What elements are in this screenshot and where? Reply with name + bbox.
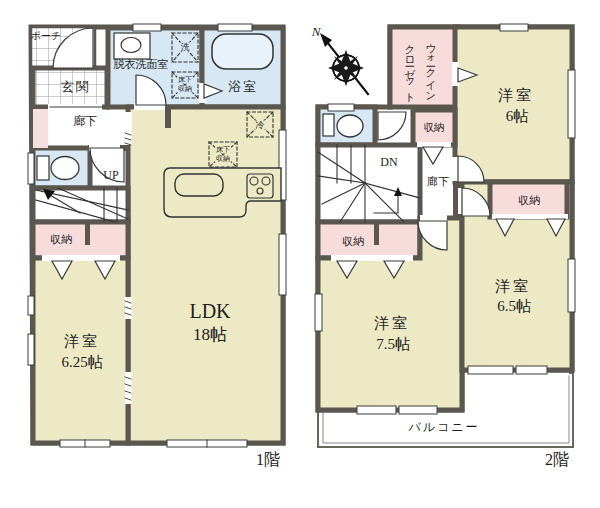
- label-washer: 洗: [180, 43, 191, 52]
- label-fridge: 冷: [255, 121, 266, 130]
- label-underfloor1-line2: 収納: [177, 86, 193, 93]
- sink-icon: [114, 33, 150, 59]
- label-floor2: 2階: [545, 452, 569, 468]
- label-storage-bedroom65: 収納: [518, 195, 540, 206]
- label-underfloor1-line1: 床下: [177, 77, 193, 84]
- label-ldk-name: LDK: [189, 301, 230, 321]
- floorplan-drawing: [0, 0, 600, 508]
- label-wic-line2: クローゼット: [404, 37, 415, 97]
- label-underfloor2-line2: 収納: [215, 156, 231, 163]
- label-bedroom-1f-name: 洋室: [64, 334, 100, 349]
- label-bedroom75-size: 7.5帖: [376, 337, 410, 352]
- room-ldk: [128, 107, 283, 443]
- label-bedroom-1f-size: 6.25帖: [61, 355, 102, 370]
- label-porch: ポーチ: [31, 31, 61, 41]
- entrance-side-strip: [33, 109, 48, 148]
- closet-track: [492, 214, 568, 219]
- label-ldk-size: 18帖: [193, 326, 227, 343]
- label-bathroom: 浴室: [228, 80, 258, 93]
- wall-stub: [374, 222, 379, 245]
- toilet-icon-2f: [323, 114, 363, 137]
- room-storage-under-stairs: [318, 222, 420, 258]
- label-storage-hall: 収納: [424, 123, 445, 134]
- room-bedroom6: [455, 27, 572, 182]
- room-bedroom-1f: [33, 258, 128, 443]
- label-up: UP: [103, 169, 118, 181]
- wall-stub: [165, 107, 171, 128]
- label-compass-north: N: [312, 25, 321, 38]
- label-balcony: バルコニー: [408, 421, 479, 433]
- label-entrance: 玄関: [61, 80, 91, 93]
- label-underfloor2-line1: 床下: [215, 147, 231, 154]
- label-washroom: 脱衣洗面室: [114, 59, 169, 70]
- closet-track: [417, 142, 451, 147]
- wall-stub: [85, 222, 90, 245]
- closet-track: [331, 255, 413, 261]
- closet-track: [42, 255, 120, 261]
- label-wic-line1: ウォークイン: [425, 36, 436, 96]
- label-storage-1f: 収納: [50, 234, 72, 245]
- label-bedroom65-name: 洋室: [495, 279, 531, 294]
- label-dn: DN: [380, 156, 397, 168]
- toilet-icon-1f: [37, 156, 79, 180]
- label-floor1: 1階: [256, 452, 280, 468]
- stairs-2f: [318, 145, 420, 222]
- room-storage-1f: [33, 222, 128, 258]
- label-bedroom6-size: 6帖: [506, 109, 529, 124]
- label-bedroom6-name: 洋室: [498, 88, 534, 103]
- compass-icon: [320, 33, 368, 94]
- label-bedroom75-name: 洋室: [374, 316, 410, 331]
- label-hallway-2f: 廊下: [427, 176, 449, 187]
- floorplan: ポーチ 玄関 脱衣洗面室 浴室 廊下 UP 収納 洋室 6.25帖 LDK 18…: [0, 0, 600, 508]
- label-hallway-1f: 廊下: [73, 115, 97, 127]
- label-bedroom65-size: 6.5帖: [497, 299, 531, 314]
- bathtub-icon: [212, 34, 273, 69]
- label-storage-under-stairs: 収納: [342, 236, 364, 247]
